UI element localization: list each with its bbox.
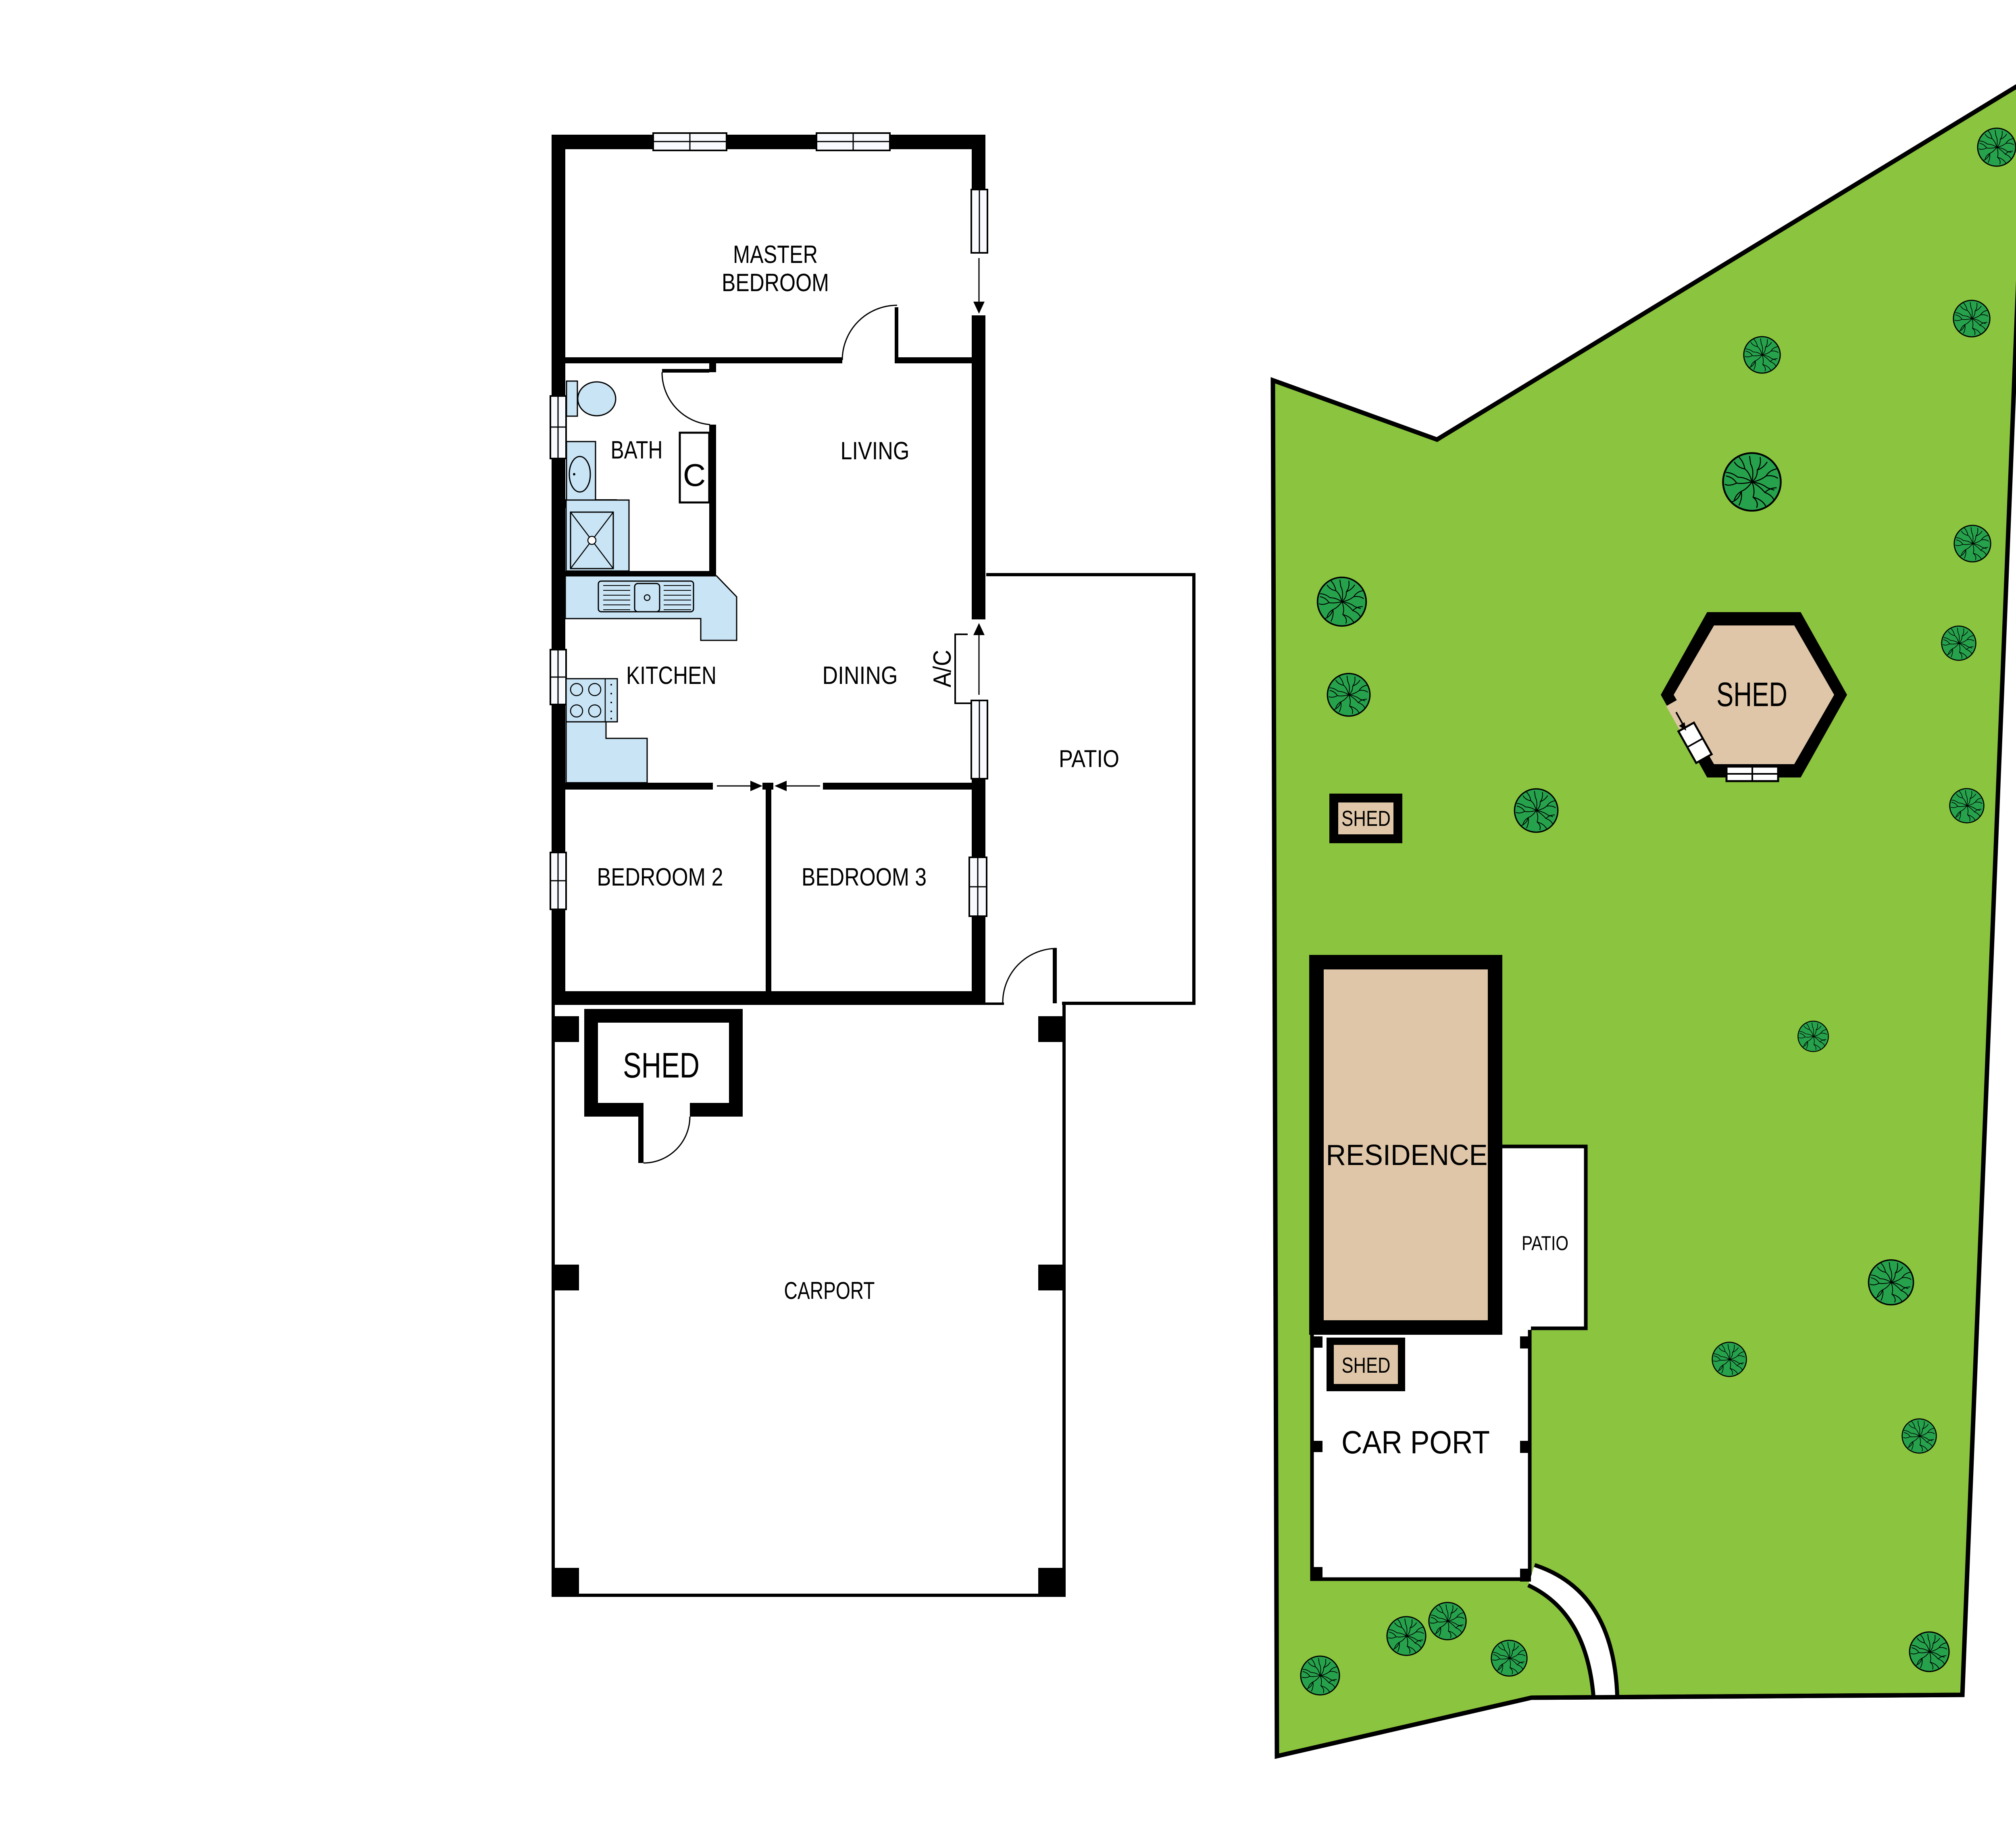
svg-text:PATIO: PATIO [1522, 1232, 1568, 1255]
svg-text:MASTER: MASTER [733, 241, 818, 269]
svg-text:CARPORT: CARPORT [784, 1277, 875, 1304]
svg-text:CAR PORT: CAR PORT [1341, 1424, 1490, 1460]
svg-text:SHED: SHED [1341, 807, 1391, 831]
svg-text:C: C [683, 457, 706, 493]
svg-text:SHED: SHED [623, 1045, 700, 1085]
svg-text:SHED: SHED [1716, 675, 1787, 713]
svg-text:DINING: DINING [823, 662, 898, 690]
svg-text:BEDROOM 2: BEDROOM 2 [597, 863, 723, 891]
svg-text:LIVING: LIVING [841, 437, 910, 465]
svg-text:SHED: SHED [1342, 1353, 1391, 1378]
svg-text:BEDROOM: BEDROOM [722, 269, 829, 297]
svg-text:KITCHEN: KITCHEN [626, 662, 716, 690]
svg-text:PATIO: PATIO [1059, 745, 1119, 772]
svg-text:RESIDENCE: RESIDENCE [1326, 1139, 1488, 1171]
svg-text:BEDROOM 3: BEDROOM 3 [802, 863, 927, 891]
svg-text:BATH: BATH [611, 436, 663, 464]
svg-text:A/C: A/C [929, 650, 956, 688]
